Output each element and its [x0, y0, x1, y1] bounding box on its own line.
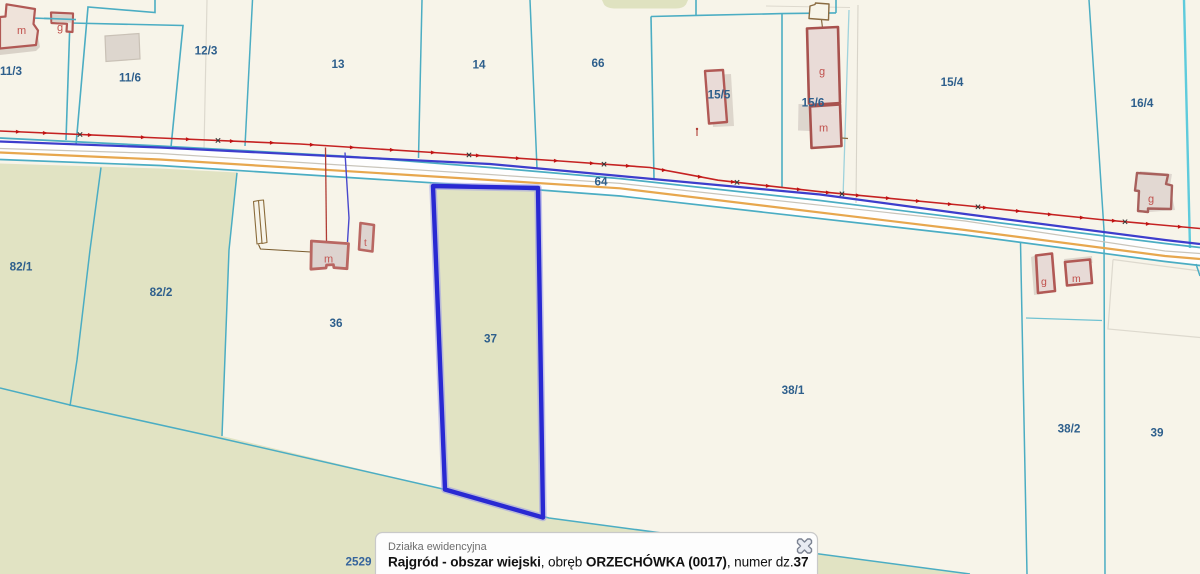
svg-text:g: g [819, 66, 825, 78]
svg-text:82/2: 82/2 [150, 286, 173, 299]
svg-text:38/2: 38/2 [1058, 423, 1081, 436]
svg-text:11/3: 11/3 [0, 65, 23, 78]
svg-text:36: 36 [329, 317, 343, 330]
svg-text:14: 14 [472, 59, 486, 72]
svg-text:15/5: 15/5 [708, 89, 731, 102]
svg-text:Działka ewidencyjna: Działka ewidencyjna [388, 541, 488, 553]
svg-text:11/6: 11/6 [119, 72, 142, 85]
svg-text:t: t [364, 238, 367, 249]
svg-text:Rajgród - obszar wiejski, obrę: Rajgród - obszar wiejski, obręb ORZECHÓW… [388, 555, 808, 570]
svg-text:m: m [324, 254, 333, 266]
svg-text:37: 37 [484, 333, 497, 346]
svg-text:g: g [57, 22, 63, 34]
svg-text:13: 13 [331, 58, 345, 71]
svg-text:m: m [17, 25, 26, 37]
svg-text:66: 66 [591, 57, 605, 70]
svg-text:15/6: 15/6 [802, 97, 825, 110]
svg-text:15/4: 15/4 [941, 76, 964, 89]
svg-text:16/4: 16/4 [1131, 97, 1154, 110]
svg-text:g: g [1148, 194, 1154, 206]
svg-text:82/1: 82/1 [10, 261, 33, 274]
svg-text:m: m [1072, 273, 1081, 285]
svg-text:12/3: 12/3 [195, 45, 218, 58]
svg-text:m: m [819, 123, 828, 135]
svg-text:2529: 2529 [345, 556, 372, 569]
svg-text:64: 64 [594, 176, 608, 189]
svg-text:39: 39 [1150, 427, 1164, 440]
svg-text:38/1: 38/1 [782, 384, 805, 397]
svg-text:g: g [1041, 276, 1047, 288]
